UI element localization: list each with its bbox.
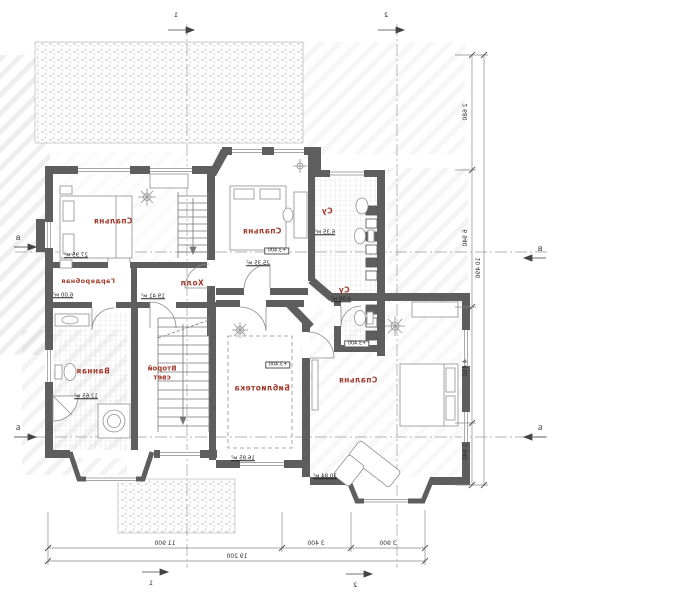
dim-right-3: 4 450: [463, 359, 469, 376]
room-label-bath-1: Су: [321, 207, 332, 215]
axis-label-bottom-2: 2: [353, 582, 357, 589]
dimension-lines-right: [455, 52, 488, 488]
level-marker-library: +3.400: [266, 362, 291, 369]
room-area-bath-1: 6.35 м²: [315, 230, 335, 236]
axis-label-top-2: 2: [384, 12, 388, 19]
room-area-bath-2: 4.00 м²: [331, 297, 351, 303]
level-marker-bedroom-2: +3.400: [265, 248, 290, 255]
floor-plan-sheet: Спальня 27.95 м² Гардеробная 6.00 м² Спа…: [0, 0, 700, 592]
room-label-bath-2: Су: [338, 286, 349, 294]
dim-right-1: 2 680: [463, 103, 469, 120]
axis-label-right-2: Б: [538, 425, 542, 432]
dim-bottom-total: 19 200: [227, 554, 248, 560]
room-area-bedroom-1: 27.95 м²: [64, 253, 88, 259]
room-label-bedroom-2: Спальня: [243, 227, 282, 235]
room-area-bedroom-2: 25.35 м²: [246, 261, 270, 267]
room-label-hall: Холл: [180, 279, 204, 287]
room-label-wardrobe: Гардеробная: [61, 278, 115, 285]
dim-right-2: 6 940: [463, 229, 469, 246]
room-label-bedroom-3: Спальня: [339, 376, 378, 384]
room-label-second-light-2: свет: [153, 375, 170, 382]
axis-label-bottom-1: 1: [149, 580, 153, 587]
dim-bottom-2: 3 400: [307, 541, 324, 547]
hatch-area-terrace: [118, 479, 235, 533]
room-area-bathroom: 12.65 м²: [74, 394, 98, 400]
dim-bottom-1: 11 900: [155, 541, 176, 547]
room-label-bedroom-1: Спальня: [94, 217, 133, 225]
dim-right-total: 10 490: [476, 258, 482, 279]
room-area-bedroom-3: 30.84 м²: [313, 474, 337, 480]
axis-label-left-2: Б: [16, 425, 20, 432]
stairs-upper: [178, 192, 208, 258]
room-label-library: Библиотека: [234, 384, 290, 392]
axis-label-top-1: 1: [174, 12, 178, 19]
axis-label-right-1: В: [538, 246, 542, 253]
axis-label-left-1: В: [16, 235, 20, 242]
room-area-wardrobe: 6.00 м²: [53, 293, 73, 299]
dim-right-4: 1 940: [463, 443, 469, 460]
level-marker-bedroom-3: +3.400: [345, 341, 370, 348]
dim-bottom-3: 3 900: [379, 541, 396, 547]
room-label-second-light-1: Второй: [148, 366, 177, 373]
hatch-area-top: [35, 42, 303, 143]
room-area-library: 16.85 м²: [231, 456, 255, 462]
room-area-hall: 19.41 м²: [141, 294, 165, 300]
room-label-bathroom: Ванная: [76, 367, 109, 375]
